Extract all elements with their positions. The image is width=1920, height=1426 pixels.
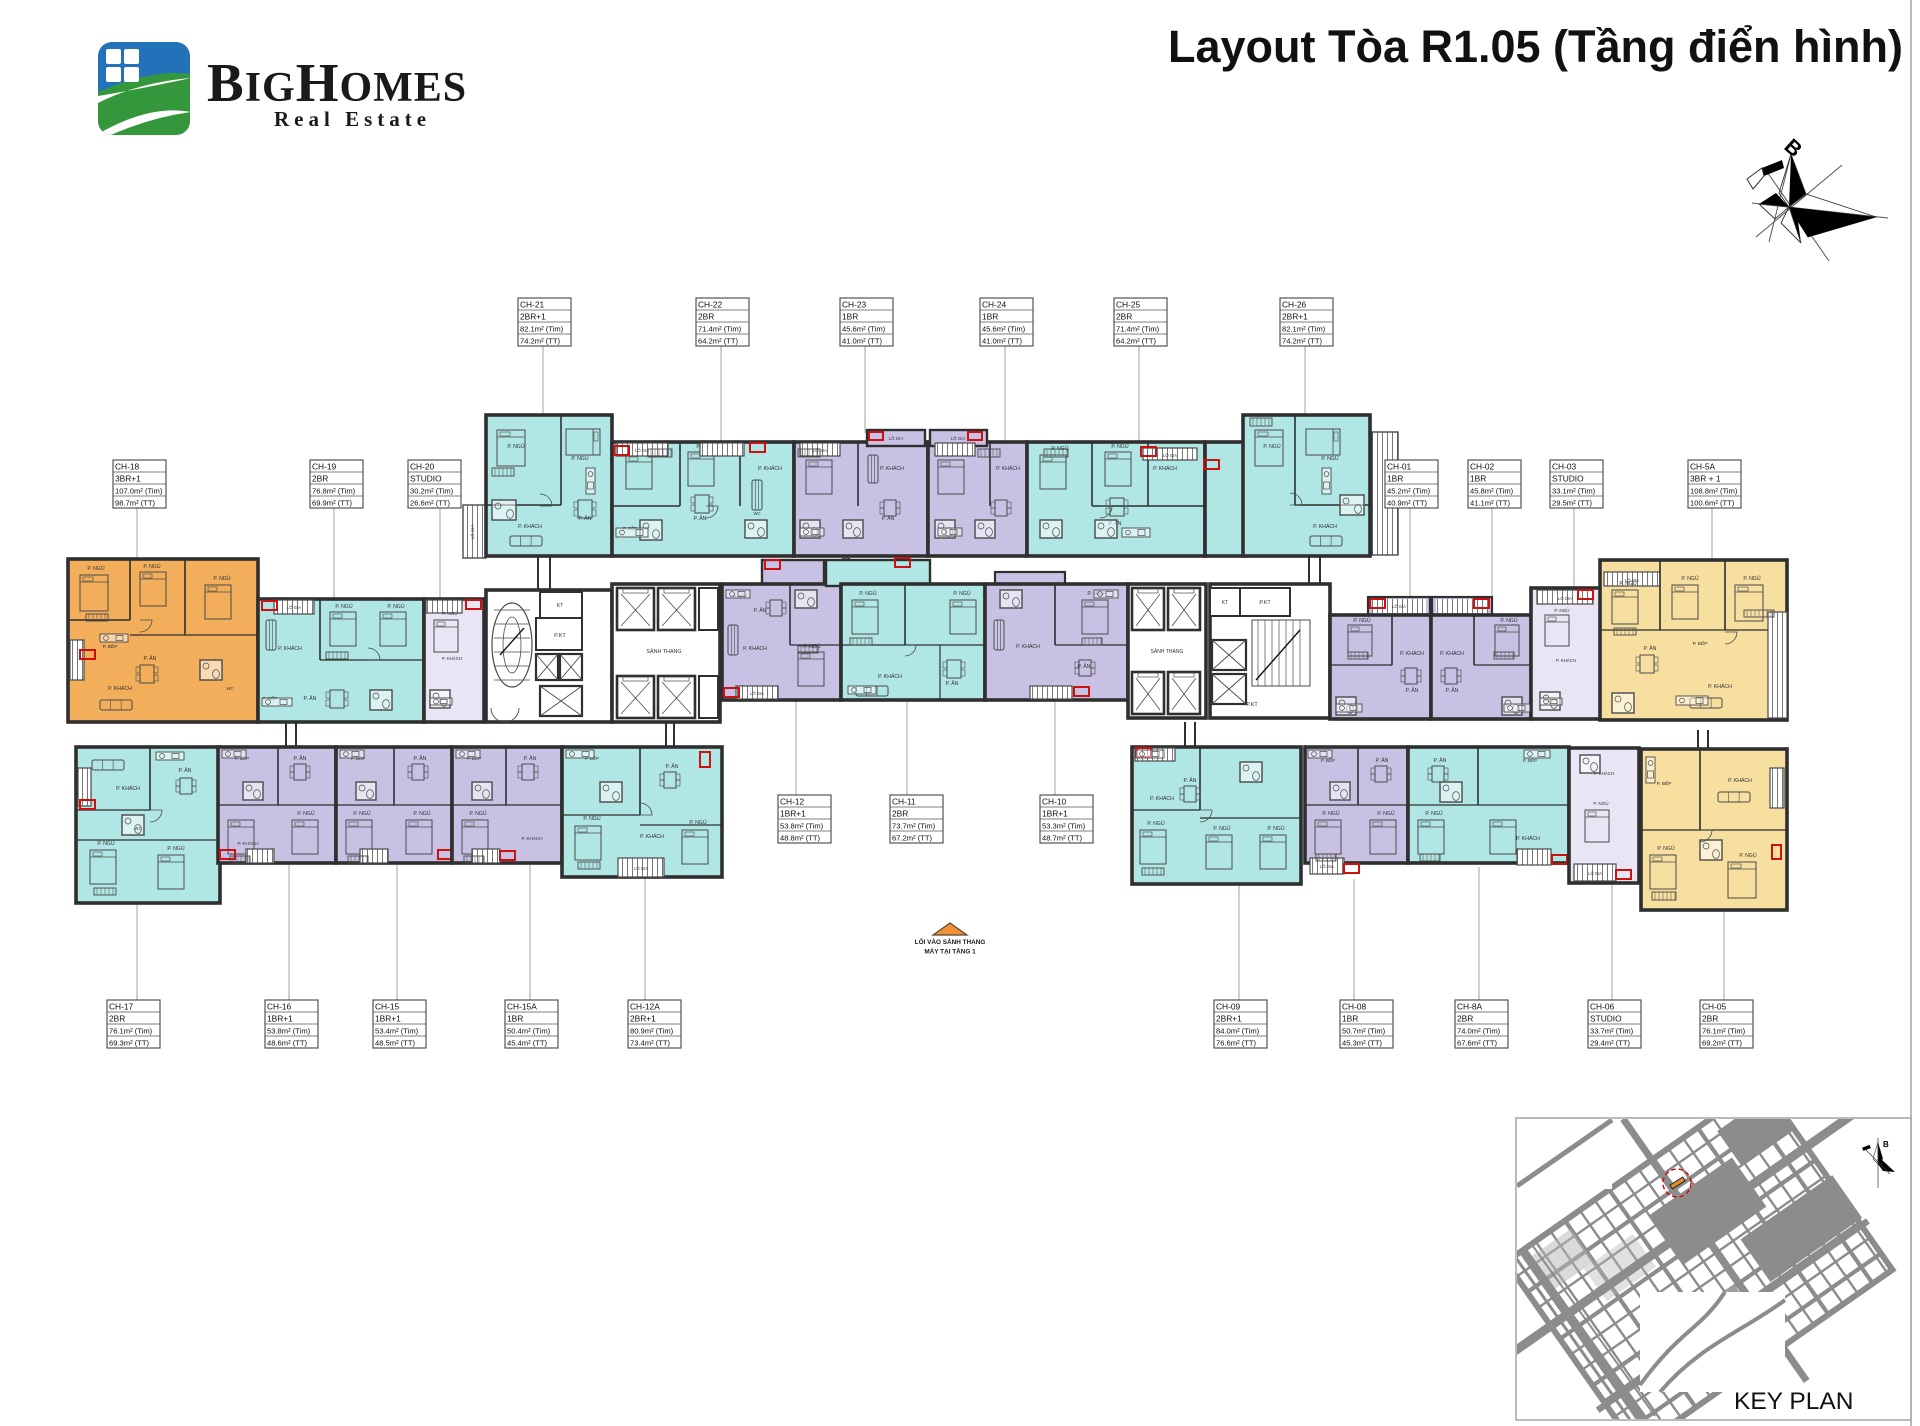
svg-text:100.6m² (TT): 100.6m² (TT) [1690, 499, 1735, 508]
svg-text:P. NGỦ: P. NGỦ [442, 610, 457, 616]
svg-text:82.1m² (Tim): 82.1m² (Tim) [1282, 325, 1326, 334]
svg-text:P. ĂN: P. ĂN [304, 695, 317, 702]
svg-text:P. NGỦ: P. NGỦ [859, 590, 876, 597]
svg-text:P. KHÁCH: P. KHÁCH [1708, 683, 1732, 690]
svg-text:2BR: 2BR [698, 312, 714, 322]
svg-text:LÔ GIA: LÔ GIA [1392, 604, 1406, 609]
svg-text:45.6m² (Tim): 45.6m² (Tim) [842, 325, 886, 334]
svg-text:29.5m² (TT): 29.5m² (TT) [1552, 499, 1593, 508]
svg-text:P. KHÁCH: P. KHÁCH [996, 465, 1020, 472]
svg-text:50.7m² (Tim): 50.7m² (Tim) [1342, 1027, 1386, 1036]
svg-text:1BR: 1BR [507, 1014, 523, 1024]
svg-text:P. NGỦ: P. NGỦ [1377, 810, 1394, 817]
svg-text:P. KHÁCH: P. KHÁCH [878, 673, 902, 680]
svg-text:P. KHÁCH: P. KHÁCH [237, 840, 258, 846]
svg-text:33.1m² (Tim): 33.1m² (Tim) [1552, 487, 1596, 496]
svg-text:P. ĂN: P. ĂN [1184, 777, 1197, 784]
svg-text:P. NGỦ: P. NGỦ [571, 455, 588, 462]
svg-text:P. KHÁCH: P. KHÁCH [880, 465, 904, 472]
svg-text:WC: WC [227, 686, 234, 691]
svg-text:1BR+1: 1BR+1 [375, 1014, 401, 1024]
svg-text:P. KHÁCH: P. KHÁCH [442, 656, 462, 661]
svg-text:P. NGỦ: P. NGỦ [689, 819, 706, 826]
svg-text:71.4m² (Tim): 71.4m² (Tim) [1116, 325, 1160, 334]
svg-text:CH-22: CH-22 [698, 300, 723, 310]
svg-text:73.4m² (TT): 73.4m² (TT) [630, 1039, 671, 1048]
svg-text:76.1m² (Tim): 76.1m² (Tim) [109, 1027, 153, 1036]
svg-text:107.0m² (Tim): 107.0m² (Tim) [115, 487, 163, 496]
svg-text:45.8m² (Tim): 45.8m² (Tim) [1470, 487, 1514, 496]
svg-text:CH-15A: CH-15A [507, 1002, 537, 1012]
svg-text:P. NGỦ: P. NGỦ [1657, 845, 1674, 852]
svg-text:76.1m² (Tim): 76.1m² (Tim) [1702, 1027, 1746, 1036]
svg-text:P. NGỦ: P. NGỦ [1554, 607, 1569, 613]
svg-text:LÔ GIA: LÔ GIA [634, 866, 648, 871]
svg-text:1BR: 1BR [1342, 1014, 1358, 1024]
svg-text:2BR+1: 2BR+1 [630, 1014, 656, 1024]
svg-text:45.3m² (TT): 45.3m² (TT) [1342, 1039, 1383, 1048]
svg-text:P. ĂN: P. ĂN [1434, 757, 1447, 764]
svg-text:1BR: 1BR [842, 312, 858, 322]
svg-text:74.2m² (TT): 74.2m² (TT) [520, 337, 561, 346]
svg-text:P. ĂN: P. ĂN [294, 755, 307, 762]
svg-text:1BR: 1BR [1470, 474, 1486, 484]
svg-text:48.7m² (TT): 48.7m² (TT) [1042, 834, 1083, 843]
svg-text:P. KHÁCH: P. KHÁCH [1556, 658, 1576, 663]
svg-text:P. NGỦ: P. NGỦ [583, 815, 600, 822]
svg-text:P. BẾP: P. BẾP [1657, 780, 1672, 787]
svg-text:Layout Tòa R1.05 (Tầng điển hì: Layout Tòa R1.05 (Tầng điển hình) [1168, 21, 1903, 72]
svg-text:1BR: 1BR [982, 312, 998, 322]
svg-text:2BR: 2BR [1702, 1014, 1718, 1024]
svg-text:P. KHÁCH: P. KHÁCH [1313, 523, 1337, 530]
svg-text:P. BẾP: P. BẾP [103, 643, 118, 650]
svg-text:P. NGỦ: P. NGỦ [335, 603, 352, 610]
svg-text:80.9m² (Tim): 80.9m² (Tim) [630, 1027, 674, 1036]
svg-text:P. NGỦ: P. NGỦ [1051, 445, 1068, 452]
svg-text:P. KHÁCH: P. KHÁCH [521, 835, 542, 841]
svg-text:2BR+1: 2BR+1 [1282, 312, 1308, 322]
svg-text:3BR+1: 3BR+1 [115, 474, 141, 484]
svg-text:74.2m² (TT): 74.2m² (TT) [1282, 337, 1323, 346]
svg-text:CH-12: CH-12 [780, 797, 805, 807]
svg-text:64.2m² (TT): 64.2m² (TT) [698, 337, 739, 346]
svg-text:KEY PLAN: KEY PLAN [1734, 1388, 1853, 1415]
svg-text:CH-17: CH-17 [109, 1002, 134, 1012]
svg-text:2BR+1: 2BR+1 [520, 312, 546, 322]
svg-text:P. KHÁCH: P. KHÁCH [758, 465, 782, 472]
svg-text:CH-11: CH-11 [892, 797, 916, 807]
svg-text:LÔ GIA: LÔ GIA [470, 525, 475, 540]
svg-text:98.7m² (TT): 98.7m² (TT) [115, 499, 156, 508]
svg-text:P. ĂN: P. ĂN [179, 767, 192, 774]
svg-text:P. ĂN: P. ĂN [524, 755, 537, 762]
svg-text:P. NGỦ: P. NGỦ [1263, 443, 1280, 450]
svg-text:P. ĂN: P. ĂN [754, 607, 767, 614]
svg-text:STUDIO: STUDIO [1590, 1014, 1622, 1024]
svg-text:P.KT: P.KT [1259, 600, 1271, 606]
svg-text:P. KHÁCH: P. KHÁCH [518, 523, 542, 530]
svg-text:2BR: 2BR [109, 1014, 125, 1024]
svg-text:P. NGỦ: P. NGỦ [413, 810, 430, 817]
svg-text:CH-18: CH-18 [115, 462, 140, 472]
svg-text:WC: WC [135, 826, 142, 831]
svg-text:LÔ GIA: LÔ GIA [951, 436, 966, 441]
svg-text:P. NGỦ: P. NGỦ [1322, 810, 1339, 817]
svg-text:48.8m² (TT): 48.8m² (TT) [780, 834, 821, 843]
svg-text:CH-01: CH-01 [1387, 462, 1412, 472]
svg-text:30.2m² (Tim): 30.2m² (Tim) [410, 487, 454, 496]
svg-text:P. KHÁCH: P. KHÁCH [1400, 650, 1424, 657]
svg-text:KT: KT [557, 603, 563, 609]
svg-text:P. NGỦ: P. NGỦ [1619, 580, 1636, 587]
svg-text:LÔ GIA: LÔ GIA [889, 436, 904, 441]
svg-text:2BR: 2BR [892, 809, 908, 819]
svg-text:LÔ GIA: LÔ GIA [1558, 596, 1572, 601]
svg-text:P. KHÁCH: P. KHÁCH [116, 785, 140, 792]
svg-text:2BR: 2BR [1116, 312, 1132, 322]
svg-text:P. NGỦ: P. NGỦ [1353, 617, 1370, 624]
svg-text:P. KHÁCH: P. KHÁCH [108, 685, 132, 692]
svg-text:CH-10: CH-10 [1042, 797, 1067, 807]
svg-text:P. KHÁCH: P. KHÁCH [1440, 650, 1464, 657]
svg-text:45.4m² (TT): 45.4m² (TT) [507, 1039, 548, 1048]
svg-text:53.4m² (Tim): 53.4m² (Tim) [375, 1027, 419, 1036]
svg-text:45.2m² (Tim): 45.2m² (Tim) [1387, 487, 1431, 496]
svg-text:CH-12A: CH-12A [630, 1002, 660, 1012]
svg-text:STUDIO: STUDIO [1552, 474, 1584, 484]
svg-text:P. ĂN: P. ĂN [1446, 687, 1459, 694]
svg-text:P. NGỦ: P. NGỦ [953, 590, 970, 597]
svg-text:P. ĂN: P. ĂN [946, 680, 959, 687]
svg-text:84.0m² (Tim): 84.0m² (Tim) [1216, 1027, 1260, 1036]
svg-text:CH-5A: CH-5A [1690, 462, 1716, 472]
svg-text:P.KT: P.KT [554, 633, 566, 639]
svg-text:P. NGỦ: P. NGỦ [469, 810, 486, 817]
svg-text:41.1m² (TT): 41.1m² (TT) [1470, 499, 1511, 508]
svg-text:P. NGỦ: P. NGỦ [1425, 810, 1442, 817]
svg-text:CH-03: CH-03 [1552, 462, 1577, 472]
svg-text:P. NGỦ: P. NGỦ [143, 563, 160, 570]
svg-text:CH-15: CH-15 [375, 1002, 400, 1012]
svg-text:69.2m² (TT): 69.2m² (TT) [1702, 1039, 1743, 1048]
svg-text:26.6m² (TT): 26.6m² (TT) [410, 499, 451, 508]
svg-text:P. NGỦ: P. NGỦ [213, 575, 230, 582]
svg-text:69.9m² (TT): 69.9m² (TT) [312, 499, 353, 508]
svg-text:P. NGỦ: P. NGỦ [353, 810, 370, 817]
svg-text:2BR: 2BR [312, 474, 328, 484]
svg-text:P. NGỦ: P. NGỦ [1111, 443, 1128, 450]
svg-text:CH-09: CH-09 [1216, 1002, 1241, 1012]
svg-text:3BR + 1: 3BR + 1 [1690, 474, 1721, 484]
svg-text:53.8m² (Tim): 53.8m² (Tim) [780, 822, 824, 831]
svg-text:P. NGỦ: P. NGỦ [87, 565, 104, 572]
svg-text:CH-16: CH-16 [267, 1002, 292, 1012]
svg-text:64.2m² (TT): 64.2m² (TT) [1116, 337, 1157, 346]
svg-text:48.6m² (TT): 48.6m² (TT) [267, 1039, 308, 1048]
svg-text:108.8m² (Tim): 108.8m² (Tim) [1690, 487, 1738, 496]
svg-text:1BR: 1BR [1387, 474, 1403, 484]
svg-text:76.6m² (TT): 76.6m² (TT) [1216, 1039, 1257, 1048]
svg-text:STUDIO: STUDIO [410, 474, 442, 484]
svg-text:P. KHÁCH: P. KHÁCH [1516, 835, 1540, 842]
svg-text:P. BẾP: P. BẾP [1693, 640, 1708, 647]
svg-text:P. NGỦ: P. NGỦ [1743, 575, 1760, 582]
svg-text:69.3m² (TT): 69.3m² (TT) [109, 1039, 150, 1048]
svg-text:CH-19: CH-19 [312, 462, 337, 472]
svg-text:41.0m² (TT): 41.0m² (TT) [842, 337, 883, 346]
svg-text:P. NGỦ: P. NGỦ [297, 810, 314, 817]
svg-text:P.KT: P.KT [1246, 702, 1258, 708]
svg-text:P. ĂN: P. ĂN [1644, 645, 1657, 652]
svg-text:P. NGỦ: P. NGỦ [97, 840, 114, 847]
svg-text:KT: KT [1222, 600, 1228, 606]
svg-text:53.8m² (Tim): 53.8m² (Tim) [267, 1027, 311, 1036]
svg-text:SẢNH THANG: SẢNH THANG [1151, 648, 1184, 655]
svg-text:P. NGỦ: P. NGỦ [1213, 825, 1230, 832]
svg-text:1BR+1: 1BR+1 [267, 1014, 293, 1024]
svg-text:P. KHÁCH: P. KHÁCH [743, 645, 767, 652]
svg-text:76.8m² (Tim): 76.8m² (Tim) [312, 487, 356, 496]
svg-text:P. KHÁCH: P. KHÁCH [1150, 795, 1174, 802]
svg-text:CH-06: CH-06 [1590, 1002, 1615, 1012]
svg-text:P. ĂN: P. ĂN [1406, 687, 1419, 694]
svg-text:P. KHÁCH: P. KHÁCH [640, 833, 664, 840]
svg-text:CH-08: CH-08 [1342, 1002, 1367, 1012]
svg-text:P. KHÁCH: P. KHÁCH [1153, 465, 1177, 472]
svg-text:CH-25: CH-25 [1116, 300, 1141, 310]
svg-text:67.2m² (TT): 67.2m² (TT) [892, 834, 933, 843]
svg-text:P. ĂN: P. ĂN [1078, 663, 1091, 670]
svg-text:CH-05: CH-05 [1702, 1002, 1727, 1012]
svg-text:P. NGỦ: P. NGỦ [1147, 820, 1164, 827]
svg-text:50.4m² (Tim): 50.4m² (Tim) [507, 1027, 551, 1036]
svg-text:73.7m² (Tim): 73.7m² (Tim) [892, 822, 936, 831]
svg-text:P. NGỦ: P. NGỦ [1593, 800, 1608, 806]
svg-text:48.5m² (TT): 48.5m² (TT) [375, 1039, 416, 1048]
svg-text:P. NGỦ: P. NGỦ [1321, 455, 1338, 462]
svg-text:P. NGỦ: P. NGỦ [1267, 825, 1284, 832]
svg-text:74.0m² (Tim): 74.0m² (Tim) [1457, 1027, 1501, 1036]
svg-text:2BR: 2BR [1457, 1014, 1473, 1024]
svg-text:P. NGỦ: P. NGỦ [1681, 575, 1698, 582]
svg-text:67.6m² (TT): 67.6m² (TT) [1457, 1039, 1498, 1048]
svg-text:40.9m² (TT): 40.9m² (TT) [1387, 499, 1428, 508]
svg-text:P. NGỦ: P. NGỦ [1500, 617, 1517, 624]
svg-text:2BR+1: 2BR+1 [1216, 1014, 1242, 1024]
svg-text:LÔ GIA: LÔ GIA [1320, 864, 1334, 869]
svg-text:P. ĂN: P. ĂN [694, 515, 707, 522]
svg-text:41.0m² (TT): 41.0m² (TT) [982, 337, 1023, 346]
svg-text:1BR+1: 1BR+1 [1042, 809, 1068, 819]
svg-text:45.6m² (Tim): 45.6m² (Tim) [982, 325, 1026, 334]
svg-text:CH-21: CH-21 [520, 300, 545, 310]
svg-text:P. KHÁCH: P. KHÁCH [1728, 777, 1752, 784]
svg-text:P. ĂN: P. ĂN [1376, 757, 1389, 764]
svg-text:B: B [1883, 1140, 1889, 1149]
svg-text:71.4m² (Tim): 71.4m² (Tim) [698, 325, 742, 334]
svg-text:P. NGỦ: P. NGỦ [507, 443, 524, 450]
svg-text:CH-8A: CH-8A [1457, 1002, 1483, 1012]
svg-text:CH-23: CH-23 [842, 300, 867, 310]
svg-text:CH-02: CH-02 [1470, 462, 1495, 472]
svg-text:1BR+1: 1BR+1 [780, 809, 806, 819]
svg-text:LÔ GIA: LÔ GIA [635, 448, 649, 453]
svg-text:33.7m² (Tim): 33.7m² (Tim) [1590, 1027, 1634, 1036]
svg-text:CH-26: CH-26 [1282, 300, 1307, 310]
svg-text:P. NGỦ: P. NGỦ [387, 603, 404, 610]
svg-text:LÔ GIA: LÔ GIA [1588, 871, 1602, 876]
svg-text:CH-24: CH-24 [982, 300, 1007, 310]
svg-text:LÔ GIA: LÔ GIA [1163, 453, 1177, 458]
svg-text:P. NGỦ: P. NGỦ [167, 845, 184, 852]
svg-text:53.3m² (Tim): 53.3m² (Tim) [1042, 822, 1086, 831]
svg-text:P. ĂN: P. ĂN [666, 763, 679, 770]
svg-text:29.4m² (TT): 29.4m² (TT) [1590, 1039, 1631, 1048]
svg-text:P. NGỦ: P. NGỦ [1739, 852, 1756, 859]
svg-text:P. KHÁCH: P. KHÁCH [1016, 643, 1040, 650]
svg-text:Real Estate: Real Estate [274, 107, 431, 131]
svg-text:P. KHÁCH: P. KHÁCH [278, 645, 302, 652]
svg-text:CH-20: CH-20 [410, 462, 435, 472]
svg-text:LÔ GIA: LÔ GIA [287, 605, 301, 610]
svg-text:WC: WC [754, 511, 761, 516]
svg-text:P. ĂN: P. ĂN [414, 755, 427, 762]
svg-text:82.1m² (Tim): 82.1m² (Tim) [520, 325, 564, 334]
svg-text:SẢNH THANG: SẢNH THANG [646, 648, 681, 655]
svg-text:P. ĂN: P. ĂN [144, 655, 157, 662]
svg-text:LÔ GIA: LÔ GIA [750, 691, 764, 696]
